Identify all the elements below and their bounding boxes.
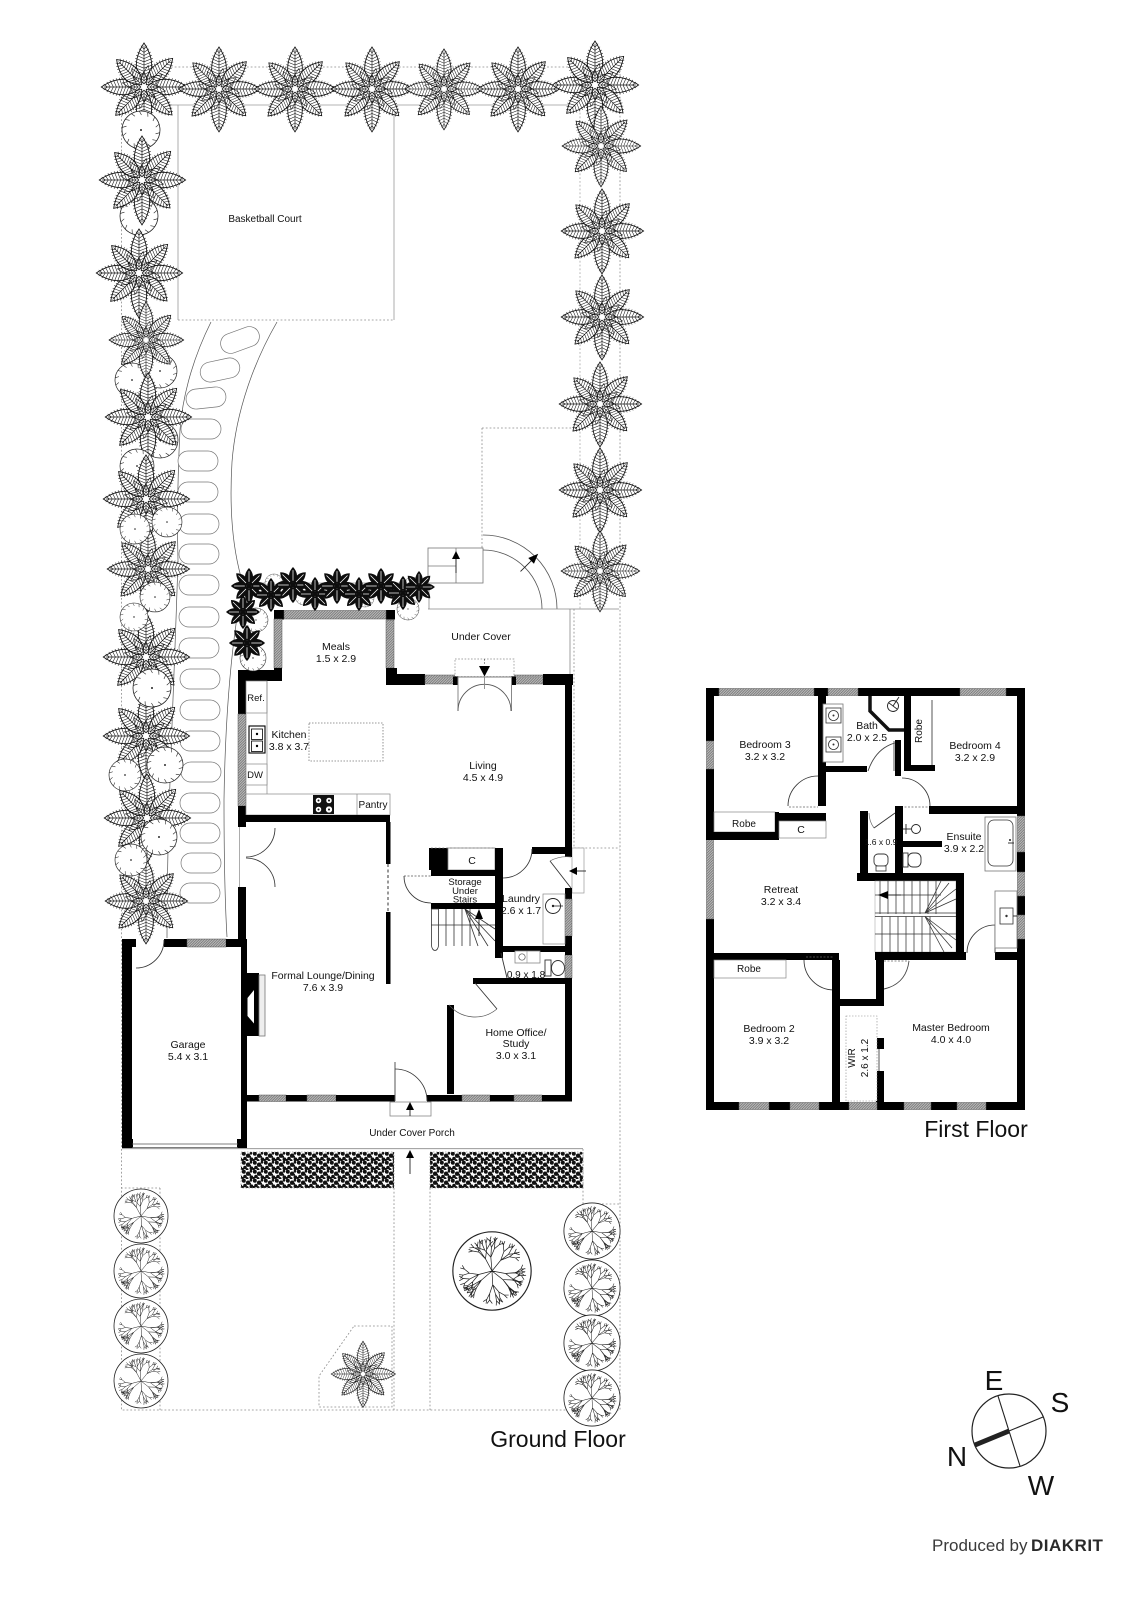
svg-text:E: E bbox=[985, 1365, 1004, 1396]
svg-text:C: C bbox=[797, 824, 805, 836]
svg-text:3.9 x 2.2: 3.9 x 2.2 bbox=[944, 843, 984, 855]
svg-text:S: S bbox=[1051, 1387, 1070, 1418]
svg-text:Retreat: Retreat bbox=[764, 884, 799, 896]
svg-text:3.2 x 3.4: 3.2 x 3.4 bbox=[761, 896, 801, 908]
svg-text:Meals: Meals bbox=[322, 641, 350, 653]
svg-text:Robe: Robe bbox=[914, 719, 925, 743]
svg-text:Bedroom 3: Bedroom 3 bbox=[739, 739, 791, 751]
svg-text:7.6 x 3.9: 7.6 x 3.9 bbox=[303, 982, 343, 994]
svg-text:2.6 x 1.2: 2.6 x 1.2 bbox=[860, 1038, 871, 1077]
svg-text:Robe: Robe bbox=[737, 964, 761, 975]
svg-text:1.5 x 2.9: 1.5 x 2.9 bbox=[316, 653, 356, 665]
svg-text:1.6 x 0.9: 1.6 x 0.9 bbox=[865, 837, 898, 847]
svg-text:Ground Floor: Ground Floor bbox=[490, 1426, 626, 1452]
svg-text:Produced by: Produced by bbox=[932, 1536, 1028, 1555]
svg-text:Laundry: Laundry bbox=[502, 893, 541, 905]
svg-text:3.9 x 3.2: 3.9 x 3.2 bbox=[749, 1035, 789, 1047]
svg-text:Garage: Garage bbox=[170, 1039, 205, 1051]
svg-text:Bath: Bath bbox=[856, 720, 878, 732]
svg-text:Bedroom 2: Bedroom 2 bbox=[743, 1023, 795, 1035]
svg-text:W: W bbox=[1028, 1470, 1055, 1501]
svg-text:Formal Lounge/Dining: Formal Lounge/Dining bbox=[271, 970, 374, 982]
svg-text:Living: Living bbox=[469, 760, 497, 772]
svg-text:2.6 x 1.7: 2.6 x 1.7 bbox=[501, 905, 541, 917]
svg-text:Kitchen: Kitchen bbox=[271, 729, 306, 741]
svg-text:C: C bbox=[468, 855, 476, 867]
svg-text:WIR: WIR bbox=[847, 1048, 858, 1067]
svg-text:Master Bedroom: Master Bedroom bbox=[912, 1022, 990, 1034]
svg-text:Ensuite: Ensuite bbox=[946, 831, 981, 843]
svg-text:Stairs: Stairs bbox=[453, 895, 478, 906]
svg-text:First Floor: First Floor bbox=[924, 1116, 1028, 1142]
svg-text:Ref.: Ref. bbox=[247, 693, 264, 704]
svg-text:N: N bbox=[947, 1441, 967, 1472]
svg-text:Bedroom 4: Bedroom 4 bbox=[949, 740, 1001, 752]
svg-text:3.0 x 3.1: 3.0 x 3.1 bbox=[496, 1050, 536, 1062]
svg-text:5.4 x 3.1: 5.4 x 3.1 bbox=[168, 1051, 208, 1063]
svg-text:3.8 x 3.7: 3.8 x 3.7 bbox=[269, 741, 309, 753]
svg-text:4.0 x 4.0: 4.0 x 4.0 bbox=[931, 1034, 971, 1046]
svg-text:4.5 x 4.9: 4.5 x 4.9 bbox=[463, 772, 503, 784]
svg-text:3.2 x 2.9: 3.2 x 2.9 bbox=[955, 752, 995, 764]
svg-text:Under Cover Porch: Under Cover Porch bbox=[369, 1128, 455, 1139]
svg-text:Under Cover: Under Cover bbox=[451, 631, 511, 643]
svg-text:DIAKRIT: DIAKRIT bbox=[1031, 1536, 1104, 1555]
svg-text:Robe: Robe bbox=[732, 819, 756, 830]
svg-text:Study: Study bbox=[503, 1038, 531, 1050]
svg-text:Pantry: Pantry bbox=[359, 800, 388, 811]
svg-text:DW: DW bbox=[247, 770, 263, 781]
svg-text:Basketball Court: Basketball Court bbox=[228, 214, 302, 225]
svg-text:2.0 x 2.5: 2.0 x 2.5 bbox=[847, 732, 887, 744]
svg-text:3.2 x 3.2: 3.2 x 3.2 bbox=[745, 751, 785, 763]
